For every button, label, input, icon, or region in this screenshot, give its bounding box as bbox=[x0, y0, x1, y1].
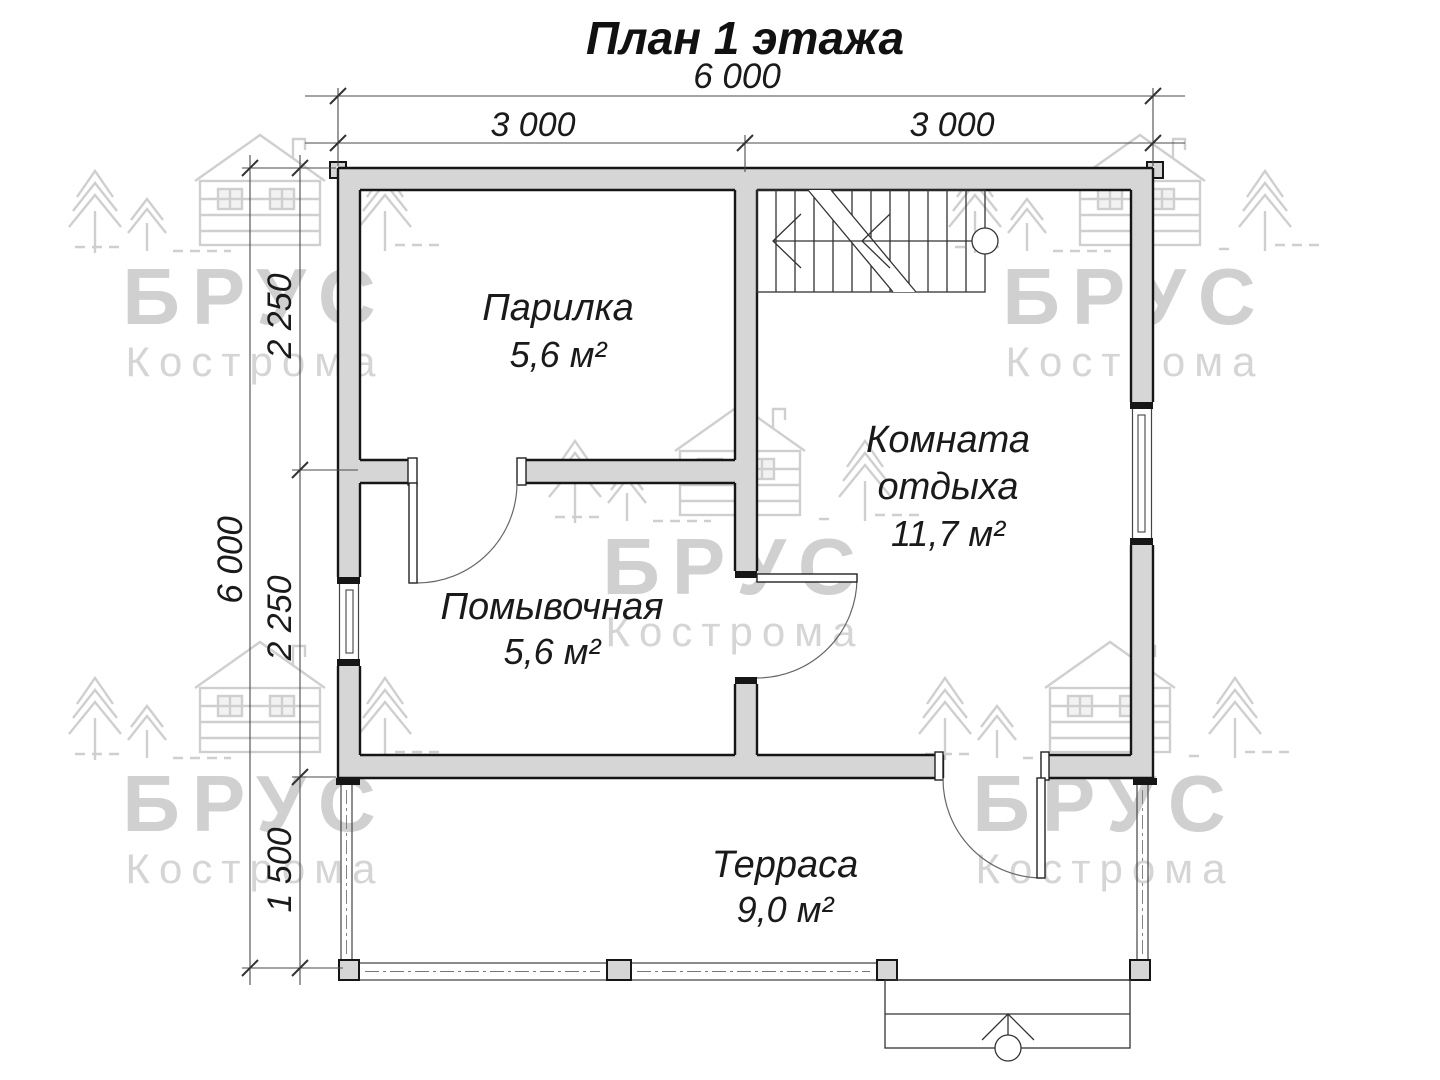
dim-right-half: 3 000 bbox=[909, 106, 994, 144]
wall-right-lower bbox=[1131, 545, 1153, 755]
door-a-jamb-right bbox=[517, 458, 526, 485]
dim-total-height: 6 000 bbox=[211, 516, 250, 604]
door-a-leaf bbox=[409, 483, 417, 583]
room-terrasa-area: 9,0 м² bbox=[737, 889, 836, 930]
wall-left-lower bbox=[338, 666, 360, 755]
terrace-post bbox=[339, 960, 359, 980]
window-right-glazing bbox=[1138, 415, 1145, 532]
terrace-post bbox=[607, 960, 631, 980]
door-c-swing-arc bbox=[943, 778, 1042, 878]
window-left-glazing bbox=[346, 590, 353, 653]
staircase bbox=[757, 190, 998, 292]
interior-wall-b-upper bbox=[735, 190, 757, 571]
room-terrasa-name: Терраса bbox=[712, 844, 859, 886]
room-pomyvochnaya-name: Помывочная bbox=[440, 586, 663, 628]
terrace-post bbox=[877, 960, 897, 980]
dim-seg-mid: 2 250 bbox=[261, 575, 299, 661]
window-left-cap-bottom bbox=[337, 659, 360, 666]
dim-seg-top: 2 250 bbox=[261, 273, 299, 359]
interior-wall-a-right bbox=[526, 460, 735, 483]
room-komnata-name-line1: Комната bbox=[866, 419, 1030, 461]
wall-bottom-right bbox=[1042, 755, 1153, 778]
wall-right-upper bbox=[1131, 190, 1153, 402]
door-terrace-entrance bbox=[935, 752, 1049, 878]
wall-fills bbox=[330, 162, 1163, 778]
interior-wall-b-stub bbox=[735, 684, 757, 755]
door-b-jamb-top bbox=[735, 571, 757, 578]
room-parilka-area: 5,6 м² bbox=[510, 334, 609, 375]
floor-plan-drawing: 6 000 3 000 3 000 6 000 2 250 2 250 1 50… bbox=[0, 0, 1440, 1080]
window-right bbox=[1131, 409, 1153, 538]
wall-left-upper bbox=[338, 190, 360, 577]
door-c-leaf bbox=[1037, 778, 1045, 878]
door-b-leaf bbox=[757, 574, 857, 582]
floor-plan-page: БРУС Кострома БРУС Кострома БРУС Костром… bbox=[0, 0, 1440, 1080]
window-right-cap-bottom bbox=[1130, 538, 1153, 545]
room-pomyvochnaya-area: 5,6 м² bbox=[504, 631, 603, 672]
door-a-swing-arc bbox=[417, 483, 517, 583]
dimension-ticks bbox=[242, 88, 1161, 976]
dim-seg-bottom: 1 500 bbox=[261, 827, 299, 912]
terrace-corner-cap-right bbox=[1133, 778, 1157, 785]
interior-wall-a-left bbox=[360, 460, 408, 483]
dimension-extension-lines bbox=[242, 88, 1153, 968]
room-komnata-area: 11,7 м² bbox=[891, 513, 1007, 554]
door-b-swing-arc bbox=[757, 578, 857, 678]
door-komnata bbox=[757, 574, 857, 678]
window-left-cap-top bbox=[337, 577, 360, 584]
door-b-jamb-bottom bbox=[735, 677, 757, 684]
entrance-steps bbox=[885, 980, 1130, 1061]
door-c-jamb-left bbox=[935, 752, 943, 780]
room-parilka-name: Парилка bbox=[482, 287, 633, 329]
window-left bbox=[338, 584, 360, 659]
terrace-corner-cap-left bbox=[336, 778, 360, 785]
window-right-cap-top bbox=[1130, 402, 1153, 409]
door-parilka bbox=[408, 458, 526, 583]
door-c-jamb-right bbox=[1041, 752, 1049, 780]
dim-left-half: 3 000 bbox=[490, 106, 575, 144]
staircase-start-circle bbox=[972, 228, 998, 254]
room-komnata-name-line2: отдыха bbox=[877, 466, 1018, 508]
wall-bottom-left bbox=[338, 755, 943, 778]
page-title: План 1 этажа bbox=[586, 12, 904, 64]
terrace-post bbox=[1130, 960, 1150, 980]
door-a-jamb-left bbox=[408, 458, 417, 485]
steps-start-circle bbox=[995, 1035, 1021, 1061]
